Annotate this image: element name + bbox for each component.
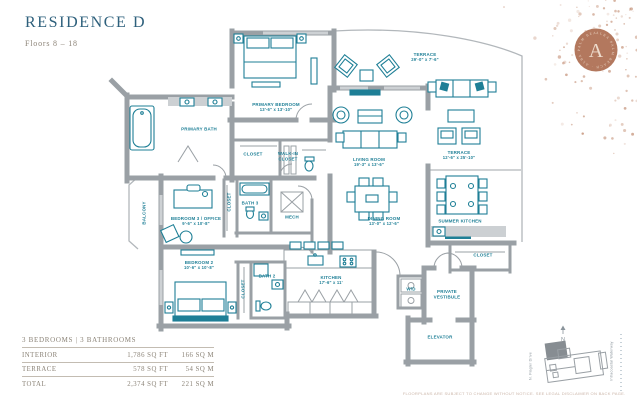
room-label: BEDROOM 3 / OFFICE9'-6" x 10'-8" xyxy=(171,216,221,227)
toilet-icon xyxy=(256,301,260,311)
nightstand-icon xyxy=(297,34,306,43)
room-label: CLOSET xyxy=(473,253,492,259)
disclaimer-text: FLOORPLANS ARE SUBJECT TO CHANGE WITHOUT… xyxy=(403,392,626,397)
area-row-sqm: 166 SQ M xyxy=(168,352,214,359)
lounge-chair-icon xyxy=(377,55,399,77)
brand-badge: ALBA PALM BEACH · ALBA PALM BEACH · A xyxy=(572,26,620,74)
area-table-rows: INTERIOR1,786 SQ FT166 SQ MTERRACE578 SQ… xyxy=(22,348,214,391)
chair-icon xyxy=(389,192,397,202)
chair-icon xyxy=(479,205,487,214)
room-dimensions: 29'-0" x 7'-6" xyxy=(411,58,438,63)
armchair-icon xyxy=(396,107,412,123)
cabinet-marks xyxy=(298,290,358,302)
area-table-row: TOTAL2,374 SQ FT221 SQ M xyxy=(22,377,214,391)
side-table-icon xyxy=(488,82,496,92)
cooktop-icon xyxy=(340,256,356,267)
room-label: TERRACE12'-6" x 25'-10" xyxy=(443,150,476,161)
dresser-icon xyxy=(311,58,317,84)
room-label: SUMMER KITCHEN xyxy=(438,219,481,225)
chair-icon xyxy=(437,205,445,214)
sink-icon xyxy=(259,212,268,220)
room-label: ELEVATOR xyxy=(428,335,453,341)
chair-icon xyxy=(347,192,355,202)
keyplan-building xyxy=(543,335,609,382)
room-label: KITCHEN17'-6" x 11' xyxy=(319,275,343,286)
desk-icon xyxy=(174,190,212,208)
area-row-label: INTERIOR xyxy=(22,352,108,359)
room-label: W/D xyxy=(406,287,415,293)
bench-icon xyxy=(252,82,280,87)
chair-icon xyxy=(437,192,445,201)
room-label: CLOSET xyxy=(243,152,262,158)
room-label: BATH 2 xyxy=(259,274,276,280)
chair-icon xyxy=(373,178,383,186)
water-label: Intracoastal Waterway xyxy=(610,341,614,380)
north-arrow-icon: N xyxy=(561,326,566,344)
street-label: N. Flagler Drive xyxy=(529,352,533,380)
sink-icon xyxy=(272,280,283,289)
room-label: CLOSET xyxy=(241,279,247,298)
room-dimensions: 12'-6" x 25'-10" xyxy=(443,156,476,161)
kitchen-counter xyxy=(288,302,374,314)
desk-chair-icon xyxy=(187,185,200,191)
room-dimensions: 10'-6" x 10'-8" xyxy=(184,266,214,271)
area-row-label: TOTAL xyxy=(22,381,108,388)
nightstand-icon xyxy=(165,302,173,313)
terrace-table-icon xyxy=(360,70,373,81)
room-label: BEDROOM 210'-6" x 10'-8" xyxy=(184,260,214,271)
room-dimensions: 13'-0" x 12'-6" xyxy=(368,222,401,227)
room-dimensions: 13'-6" x 13'-10" xyxy=(252,108,300,113)
area-row-sqft: 578 SQ FT xyxy=(108,366,168,373)
area-table-row: TERRACE578 SQ FT54 SQ M xyxy=(22,363,214,378)
area-row-sqft: 2,374 SQ FT xyxy=(108,381,168,388)
media-console-icon xyxy=(350,90,380,95)
floorplan-sheet: RESIDENCE D Floors 8 – 18 xyxy=(0,0,637,404)
room-label: LIVING ROOM19'-3" x 13'-6" xyxy=(353,157,385,168)
nightstand-icon xyxy=(234,34,243,43)
sink-icon xyxy=(208,98,222,106)
coffee-table-icon xyxy=(448,110,474,122)
room-label: DINING ROOM13'-0" x 12'-6" xyxy=(368,216,401,227)
room-label: PRIMARY BATH xyxy=(181,127,217,133)
room-label: TERRACE29'-0" x 7'-6" xyxy=(411,52,438,63)
room-label: PRIMARY BEDROOM13'-6" x 13'-10" xyxy=(252,102,300,113)
badge-letter: A xyxy=(589,40,604,62)
room-label: BATH 3 xyxy=(242,201,259,207)
area-table: 3 BEDROOMS | 3 BATHROOMS INTERIOR1,786 S… xyxy=(22,336,214,391)
chair-icon xyxy=(359,178,369,186)
room-label: PRIVATE VESTIBULE xyxy=(434,289,461,301)
dryer-icon xyxy=(401,294,421,307)
area-row-sqm: 54 SQ M xyxy=(168,366,214,373)
nightstand-icon xyxy=(228,302,236,313)
area-row-label: TERRACE xyxy=(22,366,108,373)
chair-icon xyxy=(479,179,487,188)
room-label: CLOSET xyxy=(227,192,233,211)
sink-icon xyxy=(180,98,194,106)
dining-table-icon xyxy=(355,186,389,212)
side-table-icon xyxy=(398,133,406,142)
side-table-icon xyxy=(336,133,344,142)
side-table-icon xyxy=(180,231,192,243)
room-dimensions: 9'-6" x 10'-8" xyxy=(171,222,221,227)
area-table-header: 3 BEDROOMS | 3 BATHROOMS xyxy=(22,336,214,348)
svg-text:N: N xyxy=(561,337,565,343)
room-label: WALK-IN CLOSET xyxy=(278,151,298,163)
lounge-chair-icon xyxy=(335,55,357,77)
stool-icon xyxy=(332,242,343,249)
shower-door xyxy=(178,146,198,162)
stool-icon xyxy=(318,242,329,249)
area-table-row: INTERIOR1,786 SQ FT166 SQ M xyxy=(22,348,214,363)
room-dimensions: 19'-3" x 13'-6" xyxy=(353,163,385,168)
grill-icon xyxy=(433,227,445,236)
area-row-sqm: 221 SQ M xyxy=(168,381,214,388)
stool-icon xyxy=(290,242,301,249)
summer-sink-icon xyxy=(445,237,471,240)
room-label: MECH xyxy=(285,215,299,221)
side-table-icon xyxy=(428,82,436,92)
chair-icon xyxy=(479,192,487,201)
room-dimensions: 17'-6" x 11' xyxy=(319,281,343,286)
chair-icon xyxy=(437,179,445,188)
room-label: BALCONY xyxy=(142,201,148,224)
toilet-icon xyxy=(305,161,313,171)
kitchen-sink-icon xyxy=(308,256,323,265)
console-icon xyxy=(181,250,214,255)
summer-dining-table-icon xyxy=(446,176,478,214)
armchair-icon xyxy=(333,107,349,123)
headboard-icon xyxy=(173,316,228,321)
sofa-icon xyxy=(343,131,397,148)
area-row-sqft: 1,786 SQ FT xyxy=(108,352,168,359)
stool-icon xyxy=(304,242,315,249)
keyplan: N xyxy=(515,325,637,400)
